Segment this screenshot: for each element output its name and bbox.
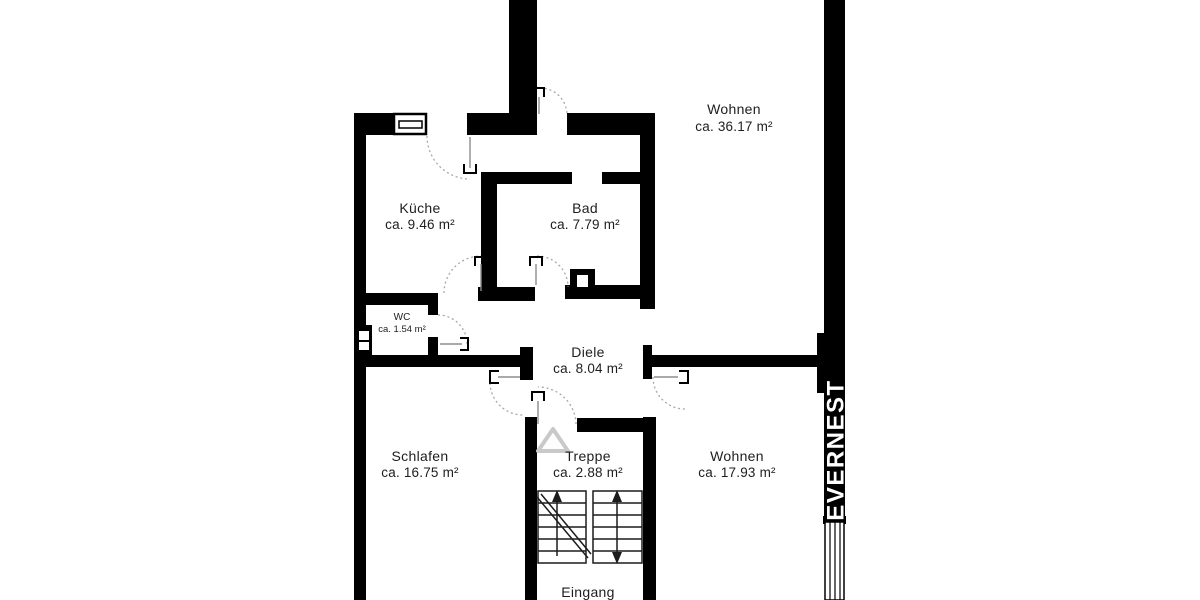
door-kueche-diele [444,256,487,293]
brand-logo: EVERNEST [823,379,850,520]
wall-divider-kueche-bad [481,172,497,292]
room-area-wc: ca. 1.54 m² [378,324,426,335]
room-label-kueche: Küche [399,200,440,216]
room-label-diele: Diele [571,344,604,360]
wall-kueche-bottom [478,287,535,301]
wall-bad-top-left [485,172,572,184]
wall-kueche-top [354,113,396,135]
room-label-schlafen: Schlafen [392,448,449,464]
wall-corridor-left [354,355,524,367]
wall-bad-bottom [565,285,643,299]
floorplan-canvas: Wohnen ca. 36.17 m² Küche ca. 9.46 m² Ba… [0,0,1200,600]
wall-wc-right-upper [428,298,438,315]
wall-stairwell-right [643,417,656,600]
wall-wc-top [354,293,438,305]
wall-corridor-right [652,355,825,367]
wall-bad-top-right [602,172,640,184]
room-area-schlafen: ca. 16.75 m² [381,465,459,480]
wall-top-block [467,113,537,135]
room-label-treppe: Treppe [565,448,611,464]
right-window-icon [823,516,846,600]
room-area-kueche: ca. 9.46 m² [385,217,455,232]
stair-up-arrow [552,490,562,556]
door-diele-treppe [532,387,576,424]
room-area-wohnen-bottom: ca. 17.93 m² [698,465,776,480]
pillar-bad-notch [577,275,588,287]
room-label-eingang: Eingang [561,584,614,600]
wall-stairwell-top [577,418,643,432]
walls [354,0,845,600]
room-label-wohnen-bottom: Wohnen [710,448,764,464]
room-area-bad: ca. 7.79 m² [550,217,620,232]
door-bad-diele [530,256,568,287]
room-area-wohnen-top: ca. 36.17 m² [695,119,773,134]
stair-direction-triangle [538,429,568,451]
door-diele-wohnen [653,371,688,409]
brand-logo-text: EVERNEST [823,379,850,520]
floorplan-svg: Wohnen ca. 36.17 m² Küche ca. 9.46 m² Ba… [0,0,1200,600]
room-area-diele: ca. 8.04 m² [553,361,623,376]
room-area-treppe: ca. 2.88 m² [553,465,623,480]
wall-bad-right [640,113,655,309]
door-vestibule-top [533,88,567,114]
wall-wc-right-lower [428,337,438,358]
chimney [509,0,537,115]
wall-stairwell-left [525,417,537,600]
wall-stub-right [643,345,652,379]
room-label-wohnen-top: Wohnen [707,101,761,117]
door-kueche-top [427,136,476,179]
door-diele-schlafen [490,371,523,415]
wall-stub-center [520,347,533,380]
door-wc [438,315,468,350]
wc-window-icon [354,325,372,356]
room-label-wc: WC [394,312,411,323]
kueche-window-icon [394,114,426,134]
room-label-bad: Bad [572,200,598,216]
